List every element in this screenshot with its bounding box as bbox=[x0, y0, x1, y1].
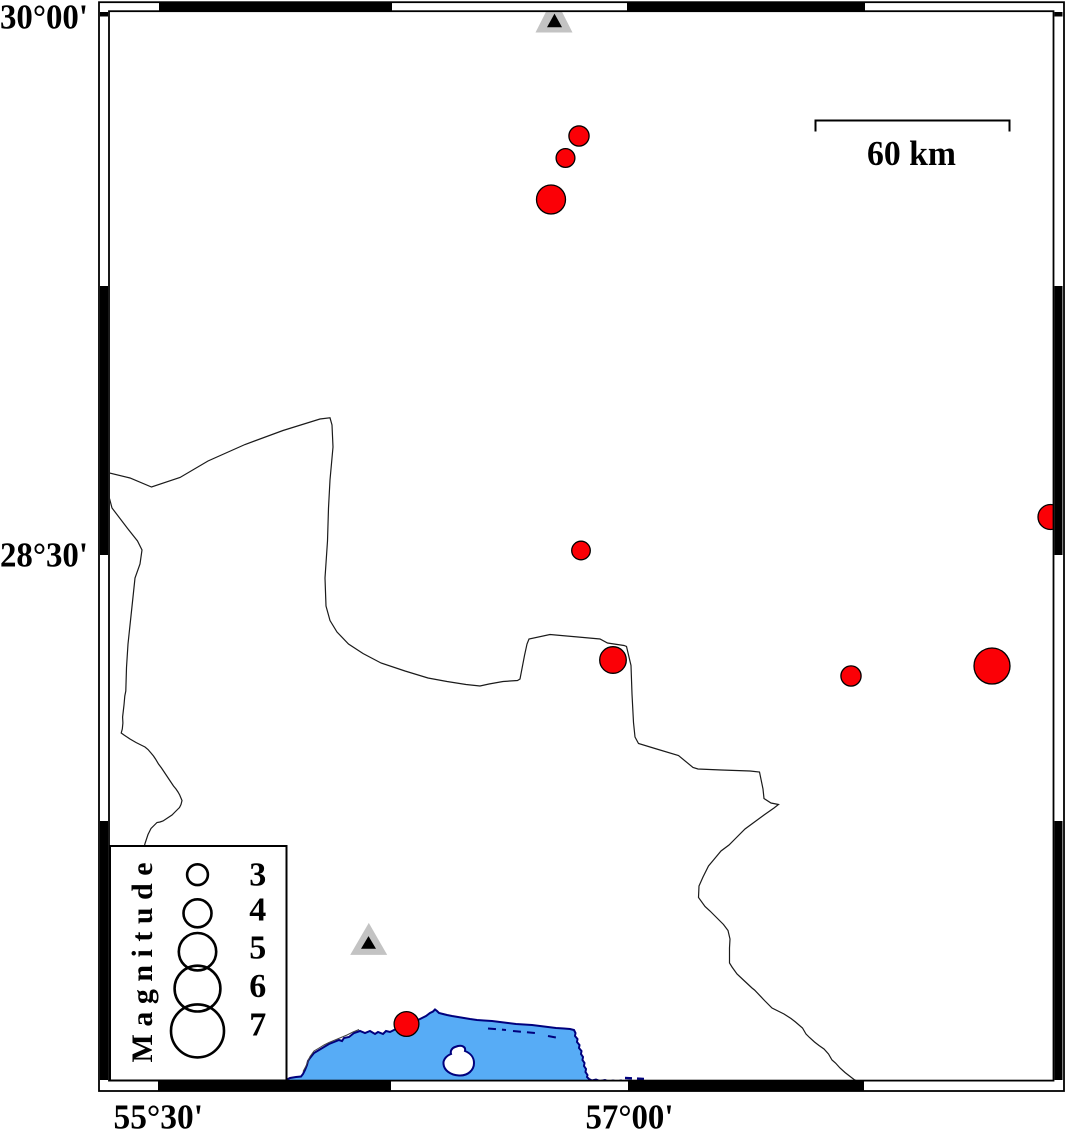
svg-text:28°30': 28°30' bbox=[0, 536, 88, 575]
svg-text:30°00': 30°00' bbox=[0, 0, 88, 37]
svg-text:60 km: 60 km bbox=[867, 134, 956, 173]
svg-text:55°30': 55°30' bbox=[114, 1098, 204, 1130]
svg-text:6: 6 bbox=[249, 968, 266, 1005]
svg-text:7: 7 bbox=[249, 1007, 266, 1044]
svg-text:4: 4 bbox=[249, 892, 266, 929]
svg-text:M a g n i t u d e: M a g n i t u d e bbox=[126, 862, 159, 1062]
svg-text:3: 3 bbox=[249, 857, 266, 894]
svg-text:5: 5 bbox=[249, 930, 266, 967]
svg-text:57°00': 57°00' bbox=[586, 1098, 674, 1130]
